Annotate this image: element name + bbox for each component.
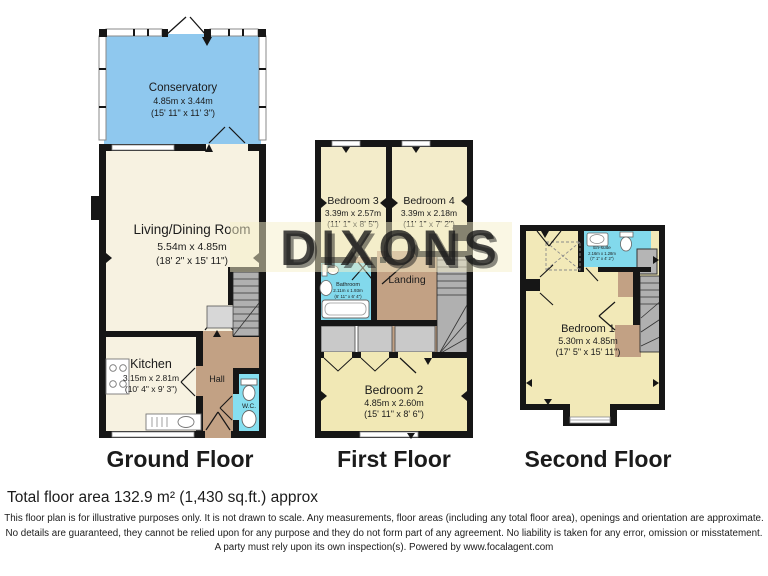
second-floor-plan: Bedroom 1 5.30m x 4.85m (17' 5" x 15' 11… xyxy=(520,225,665,426)
wall xyxy=(99,144,106,438)
room-label: Conservatory xyxy=(149,82,218,94)
room-label: Hall xyxy=(209,374,225,384)
total-floor-area: Total floor area 132.9 m² (1,430 sq.ft.)… xyxy=(7,489,318,507)
room-dim: (17' 5" x 15' 11") xyxy=(556,347,621,357)
second-floor-label: Second Floor xyxy=(525,446,672,472)
wall xyxy=(526,279,540,291)
wall xyxy=(228,29,230,36)
wall xyxy=(99,68,106,70)
wall xyxy=(99,29,107,37)
wall xyxy=(578,231,584,267)
door-opening xyxy=(324,352,352,358)
wall xyxy=(258,29,266,37)
ground-floor-label: Ground Floor xyxy=(107,446,254,472)
door-opening xyxy=(206,144,248,151)
door-swing xyxy=(166,17,186,35)
room-dim: 5.54m x 4.85m xyxy=(157,241,227,253)
wall xyxy=(147,29,149,36)
stairs xyxy=(640,276,662,352)
wall xyxy=(133,29,135,36)
wall xyxy=(259,106,266,108)
room-label: Bedroom 2 xyxy=(365,383,424,397)
hall-room xyxy=(203,337,233,432)
wall xyxy=(520,225,665,231)
wall xyxy=(315,320,437,326)
room-dim: (6' 11" x 6' 4") xyxy=(334,294,362,299)
room-label: Bedroom 4 xyxy=(403,195,455,207)
room-dim: 3.39m x 2.57m xyxy=(325,208,381,218)
window xyxy=(210,29,258,36)
wall xyxy=(633,271,640,325)
door-opening xyxy=(205,431,231,438)
window xyxy=(402,141,430,146)
wardrobe xyxy=(395,326,435,352)
wall xyxy=(259,68,266,70)
room-dim: 3.15m x 2.81m xyxy=(123,373,179,383)
sink-icon xyxy=(242,411,256,428)
door-swing xyxy=(190,17,206,35)
room-dim: (15' 11" x 11' 3") xyxy=(151,108,215,118)
window xyxy=(259,36,266,140)
toilet-icon xyxy=(620,232,633,237)
room-label: Bedroom 1 xyxy=(561,323,615,335)
room-dim: (7' 1" x 4' 2") xyxy=(590,256,614,261)
disclaimer-text: This floor plan is for illustrative purp… xyxy=(4,512,764,556)
door-opening xyxy=(233,394,239,420)
wall xyxy=(659,225,665,410)
first-floor-label: First Floor xyxy=(337,446,451,472)
wall xyxy=(162,29,168,37)
window xyxy=(112,432,194,437)
wall xyxy=(520,404,565,410)
room-dim: 5.30m x 4.85m xyxy=(558,336,618,346)
room-label: Kitchen xyxy=(130,357,172,371)
chimney xyxy=(91,196,99,220)
toilet-icon xyxy=(243,386,255,401)
wardrobe xyxy=(358,326,392,352)
window xyxy=(99,36,106,140)
room-dim: 4.85m x 2.60m xyxy=(364,398,424,408)
watermark: DIXONS DIXONS xyxy=(230,220,512,279)
wardrobe xyxy=(321,326,355,352)
toilet-icon xyxy=(621,237,632,251)
room-dim: 2.11m x 1.93m xyxy=(333,288,363,293)
floorplan-page: Conservatory 4.85m x 3.44m (15' 11" x 11… xyxy=(0,0,768,576)
wall xyxy=(259,144,266,438)
door-opening xyxy=(196,366,203,396)
wall xyxy=(467,140,473,438)
window xyxy=(112,145,174,150)
toilet-icon xyxy=(241,379,257,385)
wall xyxy=(99,106,106,108)
sink-icon xyxy=(590,235,604,244)
wall xyxy=(520,225,526,410)
sink-bowl xyxy=(178,417,194,428)
room-dim: (18' 2" x 15' 11") xyxy=(156,256,228,267)
wall xyxy=(615,404,665,410)
watermark-text: DIXONS xyxy=(280,220,502,276)
door-opening xyxy=(584,267,598,272)
room-dim: (15' 11" x 8' 6") xyxy=(364,409,424,419)
room-label: W.C. xyxy=(242,403,256,410)
landing-area xyxy=(618,272,634,297)
door-opening xyxy=(361,352,389,358)
sink-icon xyxy=(320,281,332,296)
stairs-landing xyxy=(207,306,233,328)
room-label: Bedroom 3 xyxy=(327,195,379,207)
hall-room xyxy=(233,337,260,371)
wall xyxy=(242,29,244,36)
door-opening xyxy=(398,352,432,358)
window xyxy=(332,141,360,146)
stairs xyxy=(233,272,259,336)
first-floor-plan: Bedroom 3 3.39m x 2.57m (11' 1" x 8' 5")… xyxy=(315,140,473,439)
room-dim: 3.39m x 2.18m xyxy=(401,208,457,218)
room-dim: 4.85m x 3.44m xyxy=(153,96,213,106)
wall xyxy=(228,267,233,305)
room-dim: (10' 4" x 9' 3") xyxy=(125,384,177,394)
